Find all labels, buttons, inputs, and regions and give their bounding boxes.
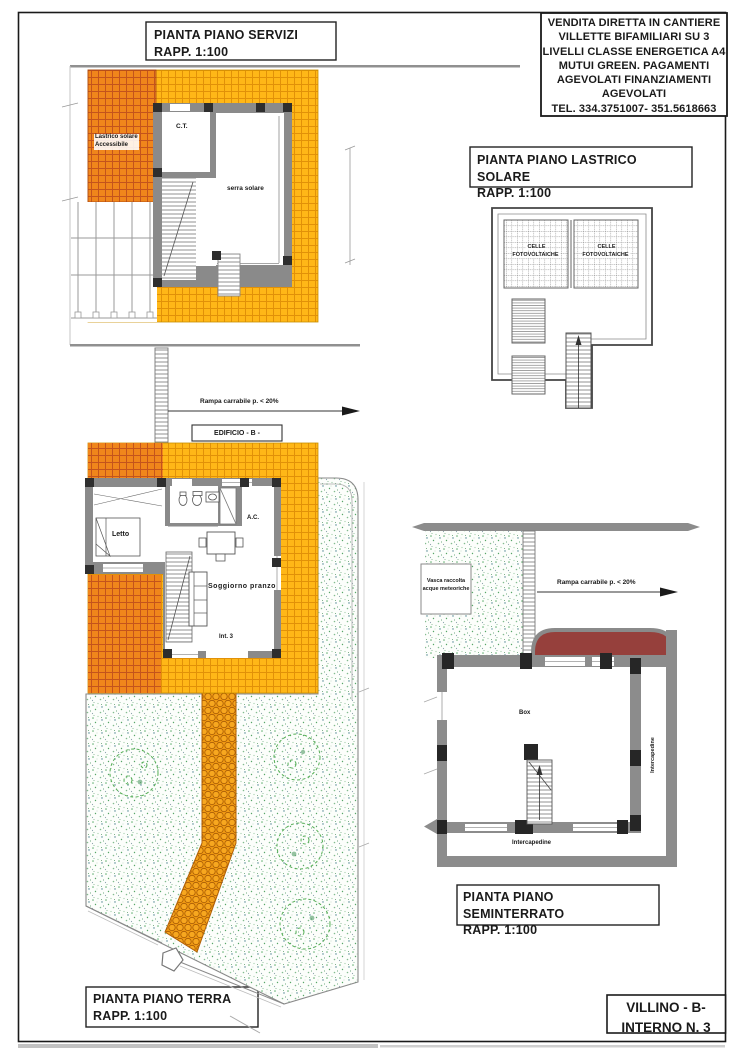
label-int3: Int. 3 [219,634,233,642]
label-ct: C.T. [176,123,188,131]
label-intercapedine-bottom: Intercapedine [512,840,551,848]
sale-banner-text: VENDITA DIRETTA IN CANTIERE VILLETTE BIF… [541,16,727,116]
plan-seminterrato [412,523,700,867]
plan-servizi [62,65,520,345]
label-celle-right-text: CELLE FOTOVOLTAICHE [582,244,629,258]
label-vasca: Vasca raccolta acque meteoriche [419,577,473,594]
title-plan-terra: PIANTA PIANO TERRA RAPP. 1:100 [93,991,255,1024]
title-plan-servizi: PIANTA PIANO SERVIZI RAPP. 1:100 [154,27,334,60]
label-ac: A.C. [247,515,259,523]
title-block-villino: VILLINO - B- INTERNO N. 3 [607,998,725,1039]
label-lastrico-accessibile: Lastrico solare Accessibile [94,134,139,150]
label-soggiorno: Soggiorno pranzo [208,582,276,591]
label-celle-left-text: CELLE FOTOVOLTAICHE [512,244,559,258]
label-box: Box [519,710,530,718]
floorplan-sheet: VENDITA DIRETTA IN CANTIERE VILLETTE BIF… [0,0,742,1050]
label-rampa-seminterrato: Rampa carrabile p. < 20% [557,579,636,587]
label-rampa-terra: Rampa carrabile p. < 20% [200,398,279,406]
label-edificio-b: EDIFICIO - B - [192,429,282,438]
plan-lastrico [492,208,652,408]
title-plan-lastrico: PIANTA PIANO LASTRICO SOLARE RAPP. 1:100 [477,152,691,202]
label-serra-solare: serra solare [227,185,264,193]
label-letto: Letto [112,530,129,539]
title-plan-seminterrato: PIANTA PIANO SEMINTERRATO RAPP. 1:100 [463,889,657,939]
label-celle-left: CELLE FOTOVOLTAICHE [504,243,568,260]
label-intercapedine-right: Intercapedine [649,726,659,784]
label-celle-right: CELLE FOTOVOLTAICHE [574,243,638,260]
